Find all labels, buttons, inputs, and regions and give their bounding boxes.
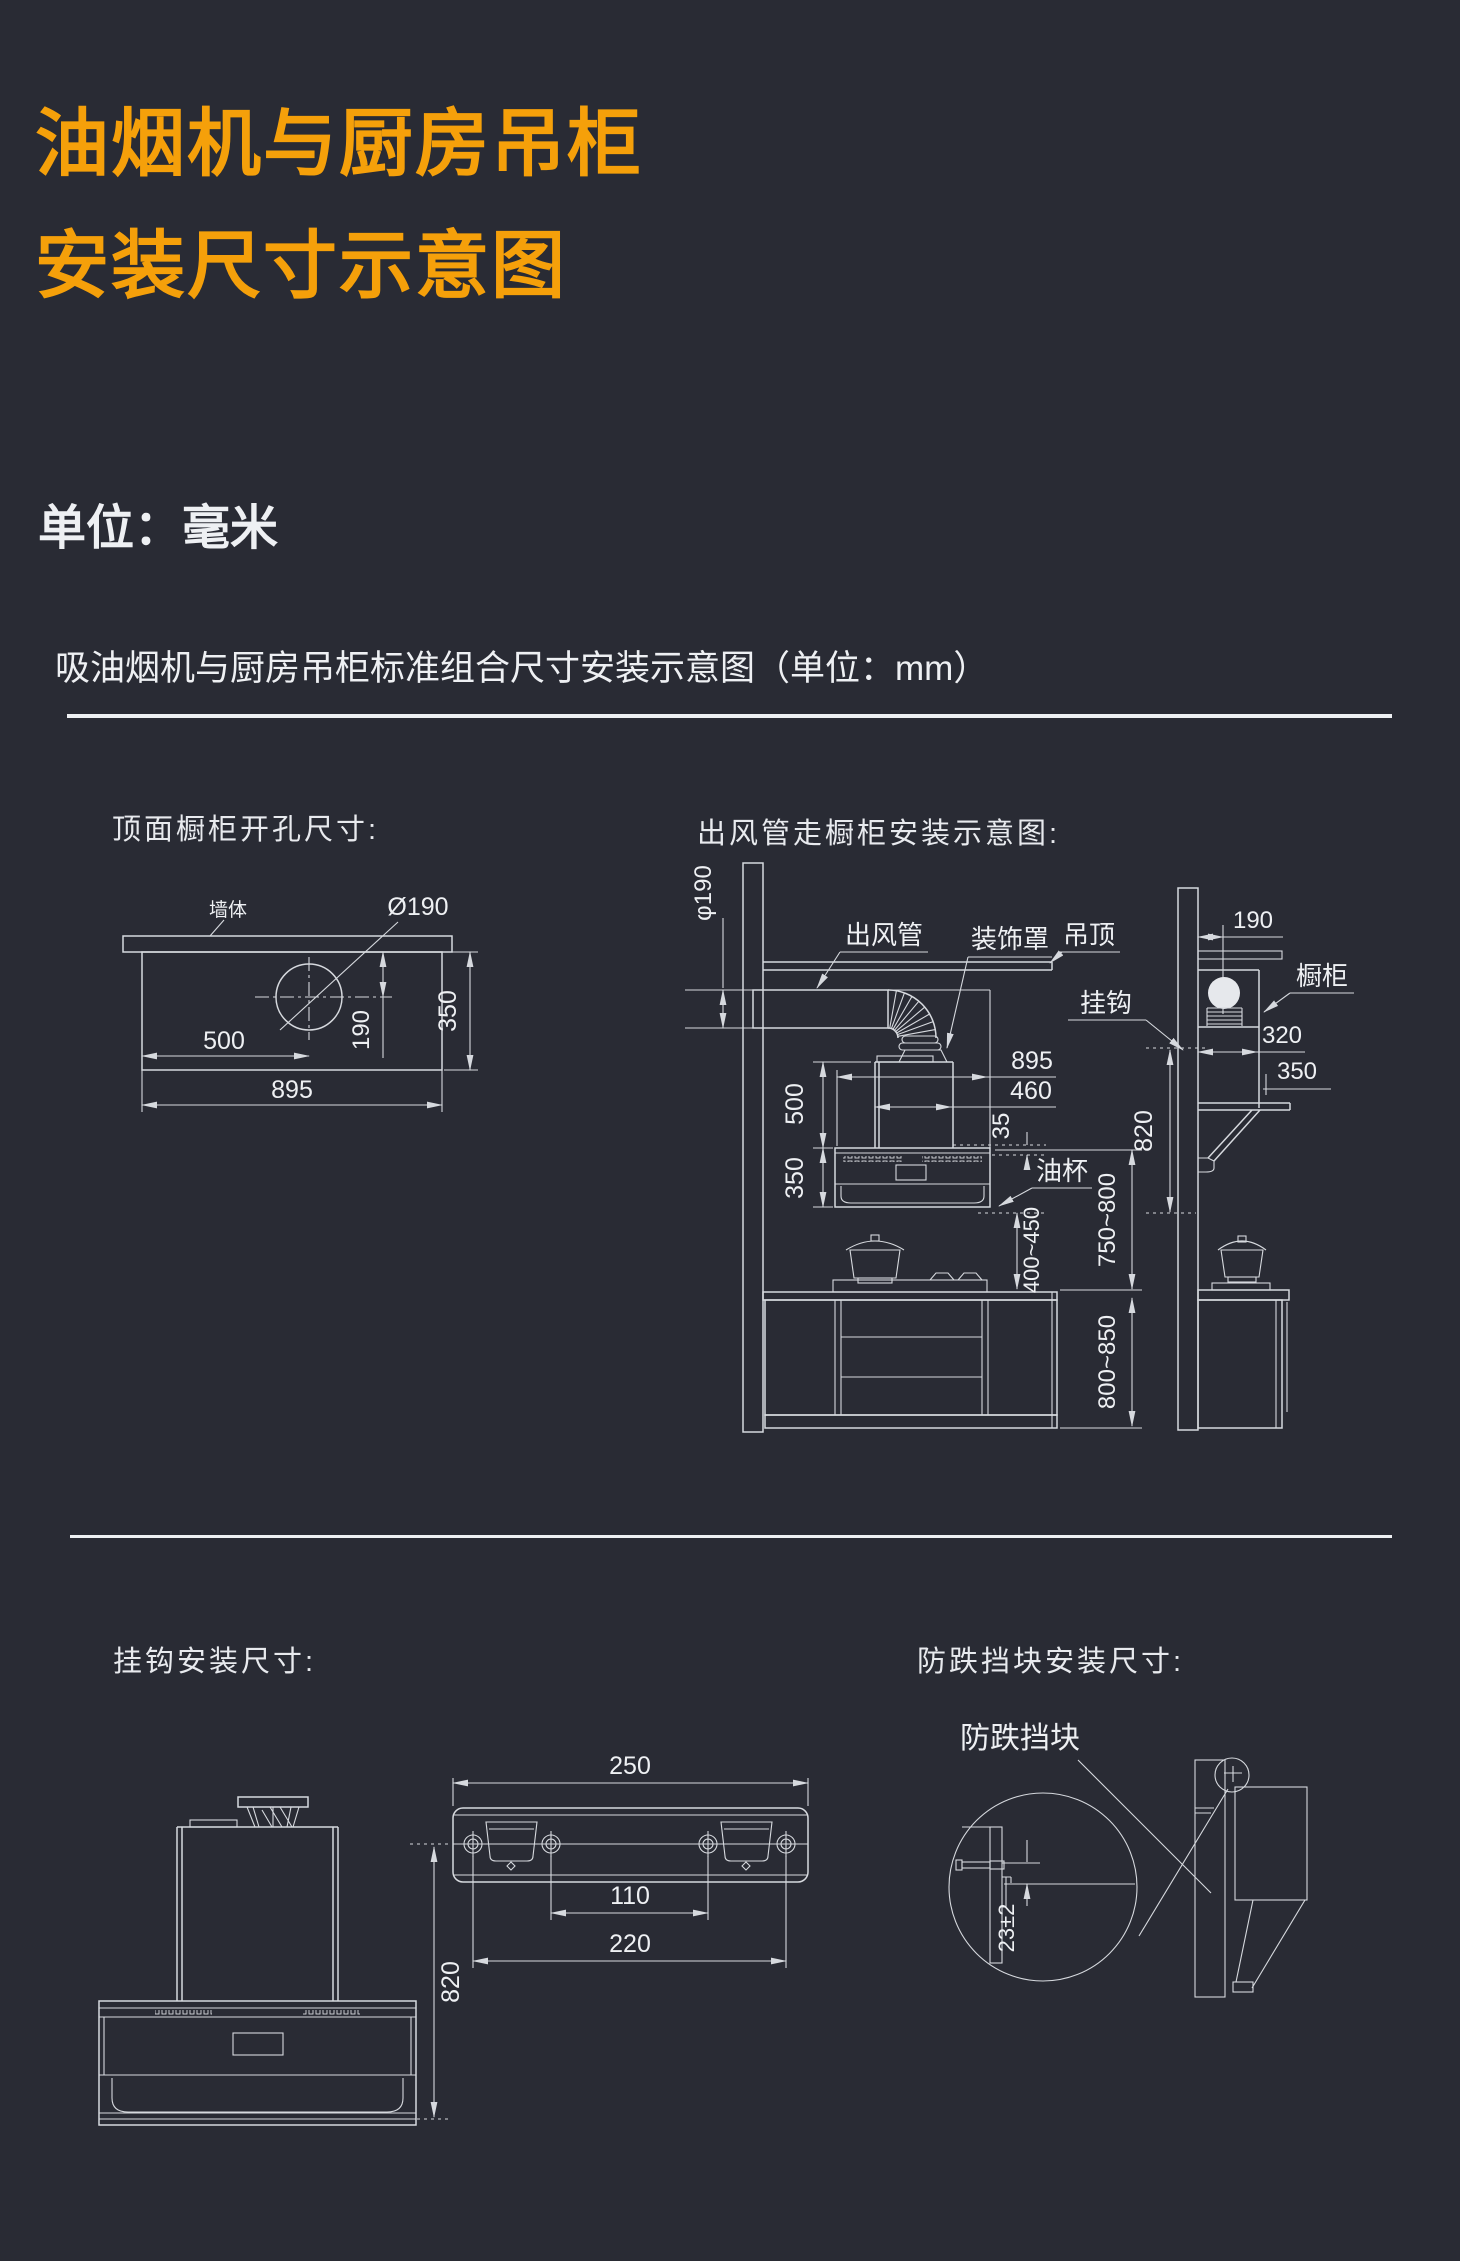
dim-500: 500 xyxy=(203,1027,245,1055)
dim-depth: 350 xyxy=(1277,1058,1317,1085)
chimney xyxy=(875,1062,953,1148)
dim-rim: 35 xyxy=(988,1113,1015,1140)
top-cutout-diagram: 墙体 Ø190 190 350 500 895 xyxy=(123,893,478,1112)
right-wall xyxy=(1178,888,1198,1430)
pot xyxy=(846,1241,904,1250)
technical-drawing-canvas: 墙体 Ø190 190 350 500 895 xyxy=(0,0,1460,2261)
side-base-cabinet xyxy=(1198,1300,1282,1428)
dim-hood-width: 895 xyxy=(1011,1047,1053,1075)
wall-strip xyxy=(123,936,452,952)
dim-895: 895 xyxy=(271,1076,313,1104)
cabinet-top-panel xyxy=(142,952,442,1070)
ceiling-line xyxy=(763,962,1052,970)
dim-counter-height: 800~850 xyxy=(1094,1315,1121,1409)
hole-dia-label: Ø190 xyxy=(387,893,448,921)
hook-slot-left xyxy=(486,1822,537,1870)
side-hood-top xyxy=(1198,1103,1290,1110)
hood-display-front xyxy=(233,2033,283,2055)
detail-circle xyxy=(949,1793,1137,1981)
dim-depth-top: 320 xyxy=(1262,1022,1302,1049)
dim-flue-width: 460 xyxy=(1010,1077,1052,1105)
dim-inner-holes: 110 xyxy=(610,1882,650,1910)
dim-350: 350 xyxy=(434,990,462,1032)
exhaust-duct xyxy=(753,990,888,1028)
ceiling-label: 吊顶 xyxy=(1063,920,1115,950)
dim-hood-height: 350 xyxy=(781,1157,809,1199)
duct-route-diagram: 出风管 装饰罩 吊顶 挂钩 橱柜 油杯 φ190 895 460 35 xyxy=(685,863,1354,1432)
cover-label: 装饰罩 xyxy=(971,924,1049,954)
dim-top-to-counter: 750~800 xyxy=(1094,1173,1121,1267)
hood-display xyxy=(896,1165,926,1180)
dim-hook-height: 820 xyxy=(1130,1110,1158,1152)
dim-plate-width: 250 xyxy=(609,1752,651,1780)
dim-190: 190 xyxy=(348,1010,375,1050)
anti-fall-diagram: 防跌挡块 23±2 xyxy=(949,1722,1307,1997)
hook-bracket xyxy=(238,1797,308,1807)
block-label: 防跌挡块 xyxy=(960,1722,1080,1755)
hook-label: 挂钩 xyxy=(1080,988,1132,1018)
dim-outer-holes: 220 xyxy=(609,1930,651,1958)
spec-sheet-page: 油烟机与厨房吊柜 安装尺寸示意图 单位：毫米 吸油烟机与厨房吊柜标准组合尺寸安装… xyxy=(0,0,1460,2261)
dim-chimney-height: 500 xyxy=(781,1083,809,1125)
duct-label: 出风管 xyxy=(845,920,923,950)
hook-mount-diagram: 820 250 110 220 xyxy=(99,1752,808,2125)
oilcup-label: 油杯 xyxy=(1036,1156,1088,1186)
side-hood xyxy=(1235,1787,1307,1900)
base-cabinet xyxy=(765,1300,1057,1415)
mounting-plate xyxy=(453,1808,808,1882)
dim-hook-height-front: 820 xyxy=(437,1961,465,2003)
cabinet-label: 橱柜 xyxy=(1296,961,1348,991)
hood-chimney xyxy=(177,1827,338,2001)
dim-block-offset: 23±2 xyxy=(994,1904,1019,1953)
dim-wall-gap: 190 xyxy=(1233,907,1273,934)
anchor-screw xyxy=(962,1862,990,1868)
hood-front xyxy=(99,2001,416,2125)
gas-stove xyxy=(833,1280,987,1292)
block-profile xyxy=(1002,1877,1011,1907)
countertop xyxy=(763,1292,1057,1300)
left-wall xyxy=(743,863,763,1432)
side-wall xyxy=(1195,1760,1225,1997)
hook-slot-right xyxy=(721,1822,772,1870)
dim-duct-dia: φ190 xyxy=(690,865,717,921)
duct-cross-section xyxy=(1208,977,1240,1009)
dim-hood-to-counter: 400~450 xyxy=(1019,1207,1044,1293)
wall-label: 墙体 xyxy=(209,899,247,921)
